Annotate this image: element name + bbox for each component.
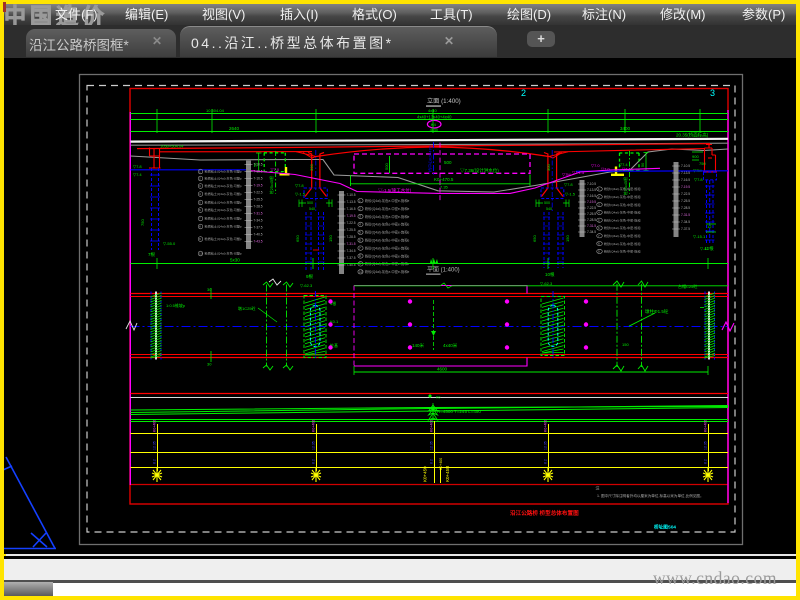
svg-text:4600: 4600 (437, 367, 448, 372)
svg-text:7-22.5: 7-22.5 (587, 206, 596, 210)
svg-text:K0+450: K0+450 (423, 466, 428, 482)
svg-text:10.504.04: 10.504.04 (206, 108, 225, 113)
svg-text:粉砂(Q4al)-灰色e-中密e-饱和e: 粉砂(Q4al)-灰色e-中密e-饱和e (365, 245, 409, 250)
svg-text:1:0.5锥坡p: 1:0.5锥坡p (166, 302, 186, 308)
svg-text:桩25x45根: 桩25x45根 (623, 177, 628, 195)
svg-text:8: 8 (359, 254, 361, 258)
svg-text:12: 12 (707, 224, 712, 229)
svg-text:K0+400: K0+400 (312, 420, 316, 432)
svg-text:1. 图中尺寸除注明者外均以厘米为单位,标高以米为单位,比例: 1. 图中尺寸除注明者外均以厘米为单位,标高以米为单位,比例见图。 (597, 493, 704, 498)
svg-text:粉质粘土(Q4al)-灰色-可塑p: 粉质粘土(Q4al)-灰色-可塑p (205, 216, 242, 221)
svg-text:粉质粘土(Q4al)-灰色-可塑p: 粉质粘土(Q4al)-灰色-可塑p (205, 176, 242, 181)
svg-text:粉砂(Q4al)-灰色-中密-饱和: 粉砂(Q4al)-灰色-中密-饱和 (604, 194, 640, 199)
svg-text:7-28.5: 7-28.5 (681, 206, 690, 210)
svg-text:▽7.8: ▽7.8 (564, 182, 573, 187)
svg-text:2: 2 (598, 195, 600, 199)
svg-text:7-16.5: 7-16.5 (587, 194, 596, 198)
svg-text:K0+400: K0+400 (704, 420, 708, 432)
svg-text:7-10.5: 7-10.5 (347, 193, 356, 197)
svg-text:7-13.5: 7-13.5 (681, 171, 690, 175)
svg-text:50: 50 (641, 163, 645, 167)
svg-text:粉质粘土(Q4al)-灰色-可塑p: 粉质粘土(Q4al)-灰色-可塑p (205, 183, 242, 188)
svg-text:7-34.5: 7-34.5 (587, 230, 596, 234)
svg-text:4: 4 (359, 223, 361, 227)
svg-text:140米: 140米 (412, 342, 425, 349)
svg-text:30: 30 (207, 287, 212, 292)
svg-text:桩25x45根: 桩25x45根 (269, 176, 274, 194)
svg-text:150: 150 (328, 235, 333, 242)
svg-text:2: 2 (359, 207, 361, 211)
svg-text:7-34.5: 7-34.5 (254, 219, 263, 223)
svg-text:8.2: 8.2 (312, 459, 316, 464)
svg-text:12.35: 12.35 (704, 441, 708, 450)
svg-text:7-25.5: 7-25.5 (587, 212, 596, 216)
svg-text:沿江公路桥 桥型总体布置图: 沿江公路桥 桥型总体布置图 (510, 509, 579, 517)
svg-text:8: 8 (598, 242, 600, 246)
svg-text:7-28.5: 7-28.5 (254, 205, 263, 209)
svg-text:7-10.5: 7-10.5 (254, 163, 263, 167)
svg-text:7: 7 (359, 246, 361, 250)
svg-text:6: 6 (598, 226, 600, 230)
svg-text:注: 注 (596, 485, 600, 491)
svg-text:7-31.5: 7-31.5 (254, 212, 263, 216)
svg-text:▽-47: ▽-47 (700, 246, 710, 251)
svg-text:粉砂(Q4al)-灰色e-中密e-饱和e: 粉砂(Q4al)-灰色e-中密e-饱和e (365, 269, 409, 274)
svg-text:粉质粘土(Q4al)-灰色-可塑p: 粉质粘土(Q4al)-灰色-可塑p (205, 251, 242, 256)
svg-text:▽7.8: ▽7.8 (694, 177, 703, 182)
svg-text:4x40+13x40+4x40: 4x40+13x40+4x40 (417, 115, 452, 120)
svg-text:7-16.5: 7-16.5 (254, 177, 263, 181)
svg-text:粉质粘土(Q4al)-灰色-可塑p: 粉质粘土(Q4al)-灰色-可塑p (205, 224, 242, 229)
svg-text:7-28.5: 7-28.5 (347, 235, 356, 239)
svg-text:3: 3 (359, 215, 361, 219)
svg-text:6: 6 (199, 208, 201, 212)
svg-text:7-13.5: 7-13.5 (587, 188, 596, 192)
svg-text:12.35: 12.35 (312, 441, 316, 450)
svg-text:1050+504.04: 1050+504.04 (160, 144, 184, 149)
svg-text:4: 4 (199, 192, 201, 196)
svg-text:K0+400: K0+400 (153, 420, 157, 432)
svg-text:K0+400: K0+400 (430, 420, 434, 432)
svg-text:7根: 7根 (148, 251, 156, 258)
svg-text:750: 750 (140, 219, 145, 226)
svg-text:10根: 10根 (545, 271, 555, 278)
svg-text:3: 3 (598, 203, 600, 207)
svg-text:粉砂(Q4al)-灰色-中密-饱和: 粉砂(Q4al)-灰色-中密-饱和 (604, 241, 640, 246)
svg-text:▽7.4: ▽7.4 (133, 172, 142, 177)
svg-text:台帽C25砼: 台帽C25砼 (678, 283, 697, 289)
svg-text:7-25.5: 7-25.5 (347, 228, 356, 232)
svg-text:12.35: 12.35 (153, 441, 157, 450)
svg-text:9: 9 (199, 237, 201, 241)
svg-text:20.35(桥面标高): 20.35(桥面标高) (676, 132, 709, 139)
svg-text:9: 9 (359, 262, 361, 266)
svg-text:▽7.4: ▽7.4 (619, 162, 628, 167)
svg-text:粉质粘土(Q4al)-灰色-可塑p: 粉质粘土(Q4al)-灰色-可塑p (205, 169, 242, 174)
svg-text:7-34.5: 7-34.5 (347, 249, 356, 253)
svg-text:7-34.5: 7-34.5 (681, 220, 690, 224)
svg-text:9根: 9根 (306, 273, 314, 280)
svg-text:540: 540 (309, 207, 315, 211)
svg-text:750: 750 (699, 161, 706, 166)
svg-text:7.35: 7.35 (440, 185, 449, 190)
svg-text:150: 150 (622, 342, 629, 347)
svg-text:2: 2 (521, 88, 526, 98)
svg-text:▽7.0: ▽7.0 (271, 167, 280, 172)
svg-text:4x40米: 4x40米 (443, 342, 458, 349)
svg-text:▽-1.5(施工水位): ▽-1.5(施工水位) (378, 187, 412, 194)
svg-text:粉砂(Q4al)-灰色-中密-饱和: 粉砂(Q4al)-灰色-中密-饱和 (604, 217, 640, 222)
svg-text:平面 (1:400): 平面 (1:400) (427, 266, 460, 273)
svg-text:7-22.5: 7-22.5 (681, 192, 690, 196)
svg-text:7-13.5: 7-13.5 (254, 170, 263, 174)
svg-text:▽7.8: ▽7.8 (295, 183, 304, 188)
svg-text:540: 540 (546, 207, 552, 211)
svg-text:7-10.5: 7-10.5 (587, 182, 596, 186)
svg-text:桥址图S04: 桥址图S04 (654, 524, 676, 531)
svg-text:500: 500 (444, 160, 452, 165)
svg-text:桥中心K0+470: 桥中心K0+470 (427, 145, 433, 172)
svg-text:1: 1 (598, 187, 600, 191)
svg-text:7-31.5: 7-31.5 (347, 242, 356, 246)
svg-text:K0+45R: K0+45R (445, 465, 450, 482)
svg-text:500: 500 (544, 201, 550, 205)
svg-text:粉砂(Q4al)-灰色e-中密e-饱和e: 粉砂(Q4al)-灰色e-中密e-饱和e (365, 238, 409, 243)
svg-text:7-31.5: 7-31.5 (587, 224, 596, 228)
svg-text:粉砂(Q4al)-灰色e-中密e-饱和e: 粉砂(Q4al)-灰色e-中密e-饱和e (365, 214, 409, 219)
svg-text:7: 7 (598, 234, 600, 238)
svg-text:7-10.5: 7-10.5 (681, 164, 690, 168)
svg-text:▽7.36(设计洪水位): ▽7.36(设计洪水位) (460, 167, 499, 174)
svg-text:粉砂(Q4al)-灰色e-中密e-饱和e: 粉砂(Q4al)-灰色e-中密e-饱和e (365, 206, 409, 211)
svg-text:▽-62.3: ▽-62.3 (540, 281, 553, 286)
svg-text:7-43.5: 7-43.5 (254, 240, 263, 244)
svg-text:5: 5 (598, 218, 600, 222)
svg-text:粉砂(Q4al)-灰色-中密-饱和: 粉砂(Q4al)-灰色-中密-饱和 (604, 233, 640, 238)
svg-text:7-19.5: 7-19.5 (587, 200, 596, 204)
svg-text:▽7.8: ▽7.8 (133, 164, 142, 169)
svg-text:650: 650 (532, 235, 537, 242)
svg-text:粉砂(Q4al)-灰色-中密-饱和: 粉砂(Q4al)-灰色-中密-饱和 (604, 225, 640, 230)
svg-text:30: 30 (207, 362, 212, 367)
svg-text:粉砂(Q4al)-灰色e-中密e-饱和e: 粉砂(Q4al)-灰色e-中密e-饱和e (365, 222, 409, 227)
svg-text:12.35: 12.35 (430, 441, 434, 450)
svg-text:6: 6 (359, 238, 361, 242)
svg-text:650: 650 (295, 235, 300, 242)
svg-text:K0+400: K0+400 (439, 458, 443, 470)
svg-text:7-31.5: 7-31.5 (681, 213, 690, 217)
svg-text:500: 500 (384, 163, 389, 170)
svg-text:900: 900 (692, 154, 699, 159)
svg-text:1: 1 (359, 199, 361, 203)
svg-text:粉砂(Q4al)-灰色e-中密e-饱和e: 粉砂(Q4al)-灰色e-中密e-饱和e (365, 230, 409, 235)
svg-text:立面 (1:400): 立面 (1:400) (427, 97, 461, 105)
svg-text:3: 3 (199, 184, 201, 188)
svg-text:7-25.5: 7-25.5 (681, 199, 690, 203)
svg-text:▽-1.5: ▽-1.5 (565, 192, 576, 197)
svg-text:8: 8 (199, 225, 201, 229)
svg-text:墩柱Φ1.5砼: 墩柱Φ1.5砼 (645, 308, 669, 315)
svg-text:8.2: 8.2 (544, 459, 548, 464)
svg-text:▽-55.0: ▽-55.0 (163, 241, 176, 246)
svg-text:7: 7 (199, 217, 201, 221)
svg-text:7-40.5: 7-40.5 (254, 233, 263, 237)
svg-text:▽-15.1: ▽-15.1 (693, 234, 706, 239)
svg-text:▽7-1.5: ▽7-1.5 (572, 170, 585, 175)
svg-text:7-25.5: 7-25.5 (254, 198, 263, 202)
svg-text:粉质粘土(Q4al)-灰色-可塑p: 粉质粘土(Q4al)-灰色-可塑p (205, 200, 242, 205)
svg-text:300: 300 (309, 164, 314, 171)
svg-text:粉砂(Q4al)-灰色-中密-饱和: 粉砂(Q4al)-灰色-中密-饱和 (604, 210, 640, 215)
svg-text:R=4500 T=245 L=490: R=4500 T=245 L=490 (437, 409, 481, 414)
svg-text:5x30: 5x30 (230, 258, 240, 263)
svg-text:9: 9 (598, 250, 600, 254)
svg-text:粉质粘土(Q4al)-灰色-可塑p: 粉质粘土(Q4al)-灰色-可塑p (205, 191, 242, 196)
svg-text:K4: K4 (431, 122, 437, 127)
svg-text:500: 500 (307, 201, 313, 205)
svg-text:2: 2 (199, 177, 201, 181)
svg-text:粉砂(Q4al)-灰色e-中密e-饱和e: 粉砂(Q4al)-灰色e-中密e-饱和e (365, 253, 409, 258)
svg-text:12.35: 12.35 (544, 441, 548, 450)
svg-text:7-19.5: 7-19.5 (254, 184, 263, 188)
svg-text:7-37.5: 7-37.5 (254, 226, 263, 230)
svg-text:7-16.5: 7-16.5 (681, 178, 690, 182)
svg-text:7-22.5: 7-22.5 (347, 221, 356, 225)
svg-text:粉砂(Q4al)-灰色e-中密e-饱和e: 粉砂(Q4al)-灰色e-中密e-饱和e (365, 198, 409, 203)
svg-text:7-19.5: 7-19.5 (347, 214, 356, 218)
svg-text:5: 5 (199, 201, 201, 205)
svg-text:7-37.5: 7-37.5 (347, 256, 356, 260)
svg-text:4: 4 (598, 211, 600, 215)
svg-text:粉砂(Q4al)-灰色-中密-饱和: 粉砂(Q4al)-灰色-中密-饱和 (604, 202, 640, 207)
svg-text:7-16.5: 7-16.5 (347, 207, 356, 211)
svg-text:5: 5 (359, 231, 361, 235)
svg-text:K0+470.5: K0+470.5 (434, 177, 454, 182)
svg-text:8.2: 8.2 (704, 459, 708, 464)
svg-text:7-22.5: 7-22.5 (254, 191, 263, 195)
svg-text:7-28.5: 7-28.5 (587, 218, 596, 222)
svg-text:粉质粘土(Q4al)-灰色-可塑p: 粉质粘土(Q4al)-灰色-可塑p (205, 236, 242, 241)
svg-text:▽-62.3: ▽-62.3 (300, 283, 313, 288)
svg-text:7-19.5: 7-19.5 (681, 185, 690, 189)
svg-text:K0+400: K0+400 (544, 420, 548, 432)
svg-text:300: 300 (546, 164, 551, 171)
svg-text:150: 150 (565, 235, 570, 242)
svg-text:K0: K0 (436, 395, 440, 399)
svg-text:墩1C25砼: 墩1C25砼 (238, 305, 256, 311)
svg-text:10: 10 (199, 252, 203, 256)
svg-text:2640: 2640 (229, 126, 240, 131)
svg-text:8.2: 8.2 (430, 459, 434, 464)
svg-text:8.2: 8.2 (153, 459, 157, 464)
svg-text:3: 3 (710, 88, 715, 98)
svg-text:10: 10 (359, 270, 363, 274)
svg-text:粉砂(Q4al)-灰色-中密-饱和: 粉砂(Q4al)-灰色-中密-饱和 (604, 249, 640, 254)
svg-text:7-37.5: 7-37.5 (681, 227, 690, 231)
svg-text:1: 1 (199, 170, 201, 174)
svg-text:粉质粘土(Q4al)-灰色-可塑p: 粉质粘土(Q4al)-灰色-可塑p (205, 207, 242, 212)
svg-text:▽7.0: ▽7.0 (591, 163, 600, 168)
svg-text:7-13.5: 7-13.5 (347, 200, 356, 204)
svg-text:粉砂(Q4al)-灰色-中密-饱和: 粉砂(Q4al)-灰色-中密-饱和 (604, 186, 640, 191)
svg-text:▽-1.5: ▽-1.5 (295, 192, 306, 197)
